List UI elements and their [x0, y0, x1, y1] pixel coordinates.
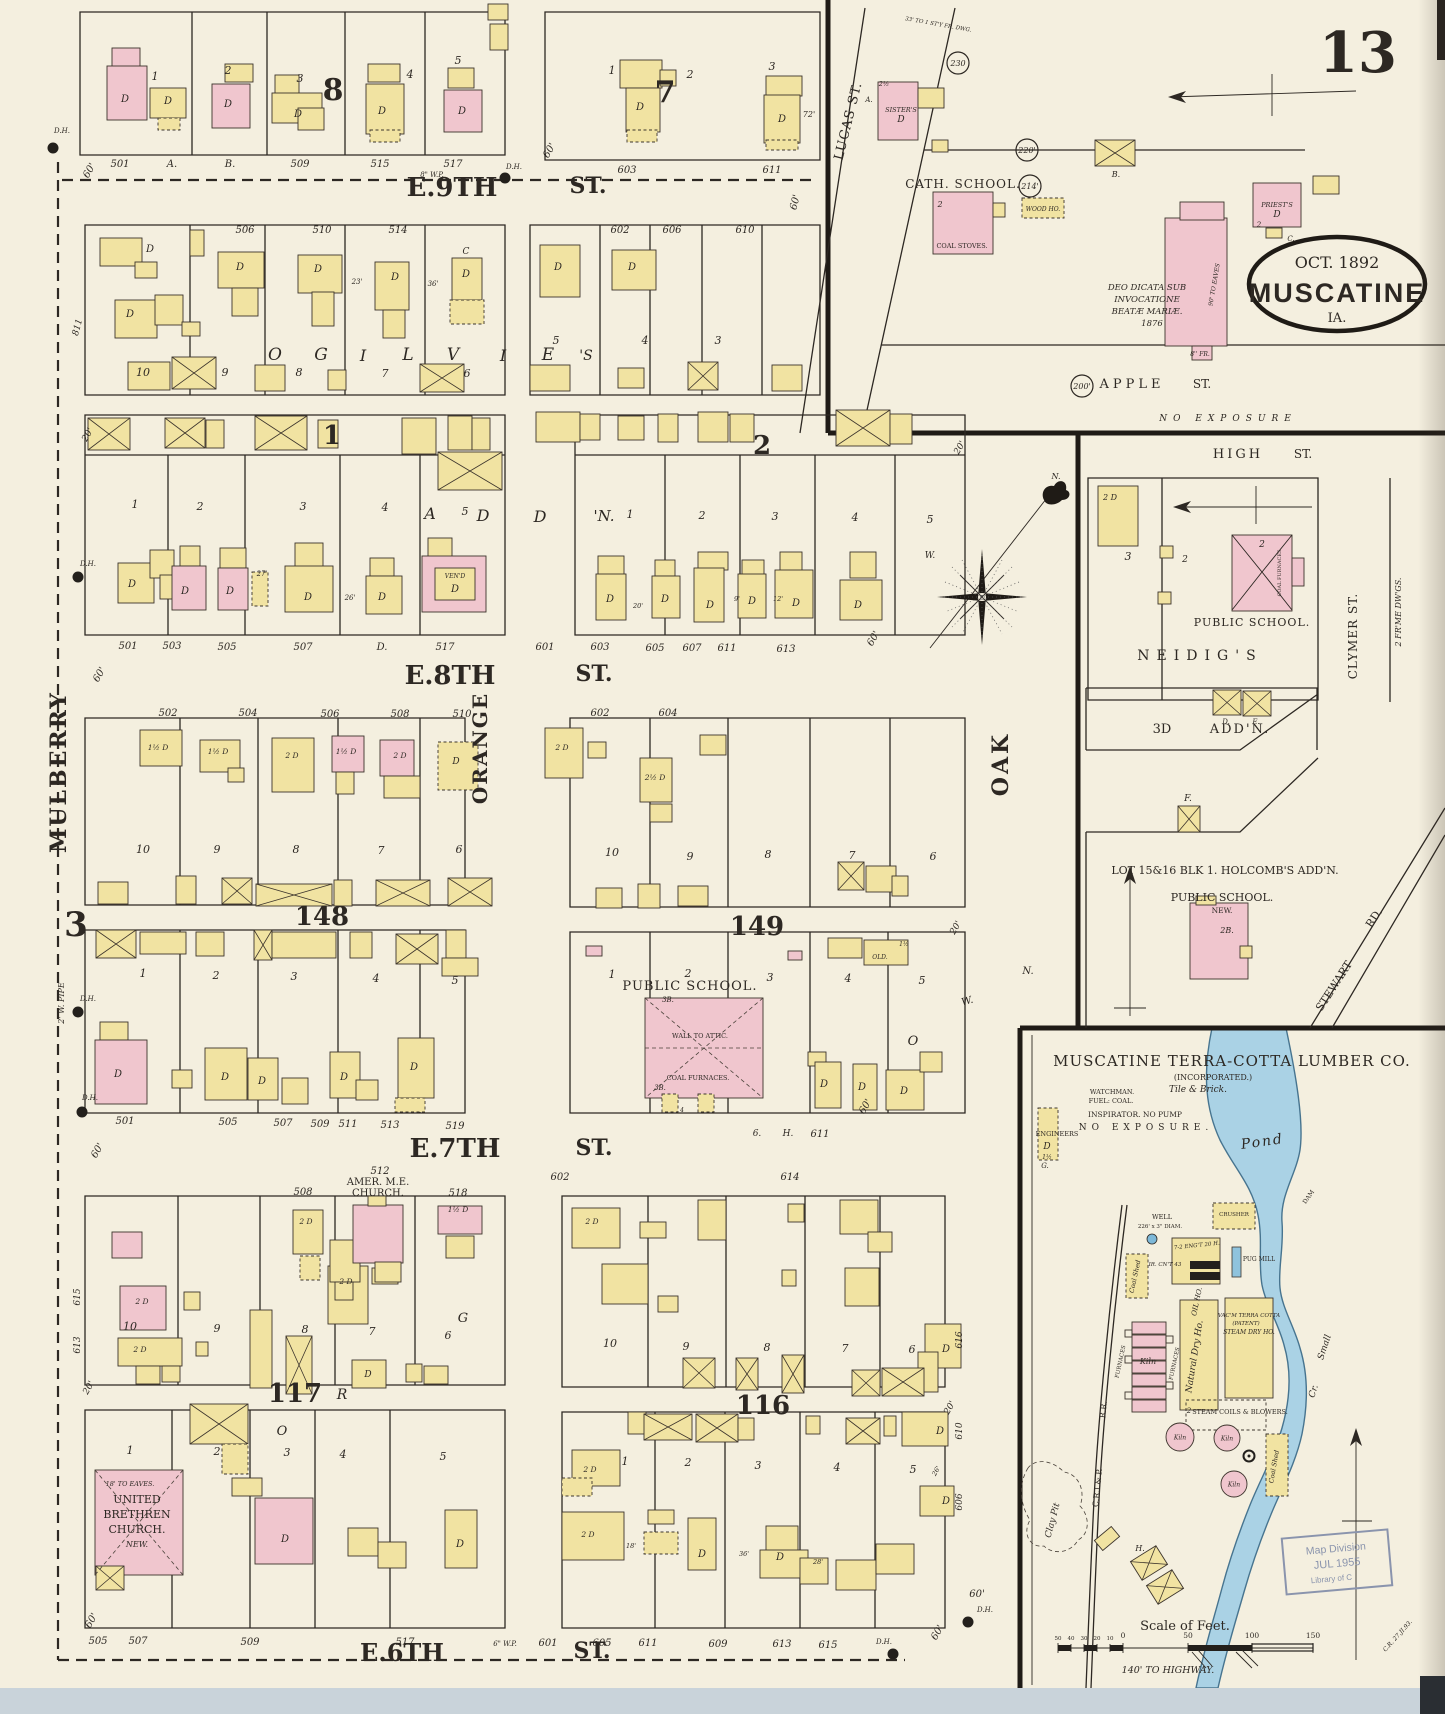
map-label: 2	[684, 1456, 692, 1469]
map-label: 602	[590, 708, 609, 719]
map-label: D	[941, 1496, 950, 1507]
building-footprint	[1243, 691, 1271, 716]
building-footprint	[420, 364, 464, 392]
map-label: 611	[638, 1638, 657, 1649]
map-label: D	[791, 598, 800, 609]
building-footprint	[840, 1200, 878, 1234]
map-label: 1½	[899, 941, 909, 948]
building-footprint	[220, 548, 246, 568]
map-label: 606	[955, 1493, 965, 1510]
map-label: UNITED	[113, 1493, 161, 1506]
map-label: (PATENT)	[1232, 1320, 1259, 1327]
map-label: D	[853, 600, 862, 611]
building-footprint	[350, 932, 372, 958]
scale-tick-label: 150	[1306, 1631, 1321, 1640]
map-label: CATH. SCHOOL.	[905, 177, 1021, 191]
hydrant-dot	[77, 1107, 88, 1118]
map-label: 1	[132, 498, 139, 511]
building-footprint	[782, 1355, 804, 1393]
map-label: OAK	[988, 732, 1014, 796]
map-label: V	[447, 345, 461, 365]
map-label: 2	[698, 509, 706, 522]
building-footprint	[780, 552, 802, 572]
map-label: 7	[378, 844, 385, 857]
map-label: 9'	[734, 595, 740, 603]
map-label: 2 D	[284, 751, 298, 760]
map-label: 1876	[1141, 319, 1163, 329]
map-label: 510	[452, 709, 472, 720]
building-footprint	[384, 776, 420, 798]
map-label: E.	[1251, 718, 1259, 726]
map-label: 610	[735, 225, 755, 236]
building-footprint	[806, 1416, 820, 1434]
map-label: D	[223, 99, 232, 110]
map-label: 6" W.P.	[493, 1640, 517, 1648]
map-label: 613	[73, 1336, 83, 1353]
building-footprint	[1132, 1387, 1166, 1399]
building-footprint	[182, 322, 200, 336]
building-footprint	[295, 543, 323, 567]
map-label: 3D	[1153, 722, 1172, 737]
map-label: 4	[851, 511, 859, 524]
building-footprint	[1190, 1261, 1220, 1269]
state-name: IA.	[1328, 311, 1347, 326]
map-label: 502	[158, 708, 177, 719]
map-label: INVOCATIONE	[1113, 295, 1180, 305]
building-footprint	[135, 262, 157, 278]
map-label: E.7TH	[410, 1134, 501, 1164]
map-label: 7	[655, 75, 676, 110]
building-footprint	[140, 932, 186, 954]
map-label: WOOD HO.	[1026, 206, 1061, 213]
building-footprint	[282, 1078, 308, 1104]
map-label: 28'	[812, 1558, 823, 1566]
building-footprint	[448, 878, 492, 906]
map-label: 2	[224, 64, 232, 77]
building-footprint	[892, 876, 908, 896]
map-label: D	[180, 586, 189, 597]
map-label: 2 FR'ME DW'GS.	[1394, 578, 1403, 648]
building-footprint	[688, 362, 718, 390]
building-footprint	[162, 1366, 180, 1382]
building-footprint	[648, 1510, 674, 1524]
map-label: E.8TH	[405, 661, 496, 691]
svg-text:200': 200'	[1072, 382, 1090, 391]
building-footprint	[572, 1208, 620, 1248]
scale-tick-label: 20	[1094, 1636, 1101, 1642]
hydrant-dot	[500, 173, 511, 184]
building-footprint	[688, 1518, 716, 1570]
building-footprint	[272, 738, 314, 792]
building-footprint	[836, 1560, 876, 1590]
map-label: D	[225, 586, 234, 597]
map-label: 3	[297, 72, 304, 85]
building-footprint	[698, 412, 728, 442]
map-label: 604	[658, 708, 677, 719]
building-footprint	[255, 365, 285, 391]
map-label: 611	[810, 1129, 829, 1140]
map-label: LOT 15&16 BLK 1. HOLCOMB'S ADD'N.	[1111, 864, 1338, 877]
building-footprint	[228, 768, 244, 782]
map-label: 601	[535, 642, 554, 653]
hydrant-dot	[963, 1617, 974, 1628]
map-label: 9	[687, 850, 694, 863]
map-label: CHURCH.	[352, 1188, 404, 1199]
building-footprint	[424, 1366, 448, 1384]
map-label: D.H.	[79, 560, 96, 568]
building-footprint	[845, 1268, 879, 1306]
scale-tick-label: 10	[1107, 1636, 1114, 1642]
map-label: D	[1272, 210, 1280, 220]
map-label: 3B.	[662, 996, 674, 1004]
kiln-circle: Kiln	[1221, 1471, 1247, 1497]
map-label: D	[941, 1344, 950, 1355]
map-label: 508	[293, 1187, 312, 1198]
map-label: 2	[1186, 1407, 1192, 1415]
map-label: NEW.	[125, 1540, 148, 1549]
scale-tick-label: 50	[1055, 1636, 1062, 1642]
map-label: ADD'N.	[1209, 722, 1270, 737]
scale-tick-label: 0	[1121, 1631, 1126, 1640]
map-label: 501	[118, 641, 137, 652]
map-label: D.H.	[81, 1094, 98, 1102]
building-footprint	[788, 1204, 804, 1222]
map-label: D	[163, 96, 172, 107]
building-footprint	[176, 876, 196, 904]
building-footprint	[876, 1544, 914, 1574]
map-label: 514	[388, 225, 407, 236]
map-label: N.	[1050, 472, 1060, 481]
map-label: 509	[290, 159, 310, 170]
map-label: O	[908, 1034, 919, 1049]
map-label: 8	[323, 73, 344, 108]
city-name: MUSCATINE	[1249, 278, 1426, 308]
map-label: WATCHMAN.	[1090, 1088, 1134, 1096]
map-label: FUEL: COAL.	[1089, 1097, 1134, 1105]
page-fold-shadow	[1418, 0, 1445, 1714]
map-label: O	[277, 1424, 288, 1439]
svg-text:230: 230	[949, 59, 965, 68]
building-footprint	[348, 1528, 378, 1556]
map-label: PUG MILL	[1243, 1256, 1275, 1263]
map-label: A.	[864, 96, 872, 104]
map-label: 4	[339, 1448, 347, 1461]
map-label: 513	[380, 1120, 399, 1131]
map-label: 4	[844, 972, 852, 985]
building-footprint	[438, 452, 502, 490]
map-label: 10	[603, 1337, 617, 1350]
map-label: 602	[550, 1172, 569, 1183]
map-label: D	[896, 115, 904, 125]
building-footprint	[678, 886, 708, 906]
building-footprint	[536, 412, 580, 442]
map-label: 3B.	[654, 1084, 666, 1092]
building-footprint	[184, 1292, 200, 1310]
map-label: 1	[609, 968, 616, 981]
map-label: D.H.	[976, 1606, 993, 1614]
map-label: H.	[782, 1129, 794, 1139]
corner-shadow	[1420, 1676, 1445, 1714]
map-label: 515	[370, 159, 389, 170]
building-footprint	[655, 560, 675, 576]
building-footprint	[180, 546, 200, 566]
map-label: 2 D	[1102, 493, 1118, 502]
map-label: 5	[455, 54, 462, 67]
map-label: D.H.	[875, 1638, 892, 1646]
building-footprint	[828, 938, 862, 958]
svg-text:Kiln: Kiln	[1173, 1435, 1186, 1442]
building-footprint	[488, 4, 508, 20]
building-footprint	[353, 1205, 403, 1263]
map-label: B.	[1111, 170, 1120, 179]
building-footprint	[285, 566, 333, 612]
building-footprint	[312, 292, 334, 326]
building-footprint	[383, 310, 405, 338]
map-label: ST.	[575, 1135, 612, 1161]
hydrant-dot	[73, 572, 84, 583]
map-label: 2	[1181, 555, 1188, 565]
building-footprint	[275, 75, 299, 95]
building-footprint	[172, 357, 216, 389]
map-label: NO EXPOSURE.	[1079, 1123, 1213, 1133]
map-label: ST.	[569, 173, 606, 199]
building-footprint	[775, 570, 813, 618]
building-footprint	[1132, 1400, 1166, 1412]
map-label: 3	[64, 905, 88, 945]
map-label: 1	[127, 1444, 134, 1457]
map-label: D	[293, 109, 302, 120]
map-label: 6.	[753, 1129, 762, 1139]
map-label: 10	[123, 1320, 137, 1333]
map-label: D	[457, 106, 466, 117]
map-label: 9	[222, 366, 229, 379]
map-label: 501	[115, 1116, 134, 1127]
map-label: D	[455, 1539, 464, 1550]
map-label: 508	[390, 709, 409, 720]
map-label: 2 D	[132, 1345, 146, 1354]
map-label: 603	[590, 642, 609, 653]
map-label: PUBLIC SCHOOL.	[1194, 616, 1311, 629]
building-footprint	[1190, 1272, 1220, 1280]
map-label: 'S	[579, 348, 592, 364]
map-label: 609	[708, 1639, 728, 1650]
building-footprint	[396, 934, 438, 964]
map-label: 1½ D	[336, 747, 356, 756]
map-label: 605	[592, 1638, 611, 1649]
map-label: COAL STOVES.	[936, 242, 987, 250]
building-footprint	[376, 880, 430, 906]
map-label: 36'	[428, 280, 439, 288]
building-footprint	[250, 1310, 272, 1388]
map-label: I	[359, 346, 367, 365]
building-footprint	[232, 288, 258, 316]
map-label: 2½ D	[644, 773, 665, 782]
map-label: 613	[776, 644, 795, 655]
map-label: D	[533, 507, 547, 526]
building-footprint	[586, 946, 602, 956]
building-footprint	[868, 1232, 892, 1252]
building-footprint	[406, 1364, 422, 1382]
map-label: 60'	[969, 1589, 984, 1600]
building-footprint	[472, 418, 490, 450]
map-label: 27'	[256, 570, 268, 578]
map-label: 2	[212, 969, 220, 982]
map-label: 4	[833, 1461, 841, 1474]
building-footprint	[490, 24, 508, 50]
building-footprint	[658, 414, 678, 442]
building-footprint	[638, 884, 660, 908]
map-label: MUSCATINE TERRA-COTTA LUMBER CO.	[1053, 1052, 1411, 1070]
building-footprint	[96, 1566, 124, 1590]
map-label: BEATÆ MARIÆ.	[1111, 307, 1183, 317]
map-label: 7	[849, 849, 856, 862]
map-label: 116	[736, 1391, 790, 1421]
map-label: D	[660, 594, 669, 605]
map-label: AMER. M.E.	[346, 1177, 410, 1188]
map-label: 10	[136, 366, 150, 379]
map-label: D	[476, 506, 490, 525]
building-footprint	[206, 420, 224, 448]
map-label: WELL	[1152, 1213, 1173, 1221]
map-label: 615	[73, 1288, 83, 1305]
map-label: 2 D	[580, 1530, 594, 1539]
map-label: 10	[605, 846, 619, 859]
map-label: D	[145, 244, 154, 255]
map-label: E	[541, 345, 555, 365]
building-footprint	[222, 1444, 248, 1474]
building-footprint	[545, 728, 583, 778]
map-label: (INCORPORATED.)	[1174, 1073, 1252, 1082]
map-label: D	[899, 1086, 908, 1097]
map-label: 606	[662, 225, 682, 236]
map-label: D	[777, 114, 786, 125]
building-footprint	[100, 1022, 128, 1040]
map-label: 2	[196, 500, 204, 513]
building-footprint	[884, 1416, 896, 1436]
building-footprint	[1213, 690, 1241, 715]
map-label: D.H.	[505, 163, 522, 171]
map-label: 2½	[878, 80, 889, 88]
map-label: DEO DICATA SUB	[1107, 283, 1186, 293]
building-footprint	[932, 140, 948, 152]
kiln-circle: Kiln	[1214, 1425, 1240, 1451]
map-label: D	[339, 1072, 348, 1083]
map-label: D	[1042, 1142, 1050, 1152]
building-footprint	[442, 958, 478, 976]
map-label: COAL FURNACES	[1277, 549, 1283, 596]
map-label: 1	[622, 1455, 629, 1468]
map-label: A.	[166, 159, 177, 170]
map-label: 3	[1125, 550, 1132, 563]
map-label: NEW.	[1212, 906, 1233, 915]
map-label: 2 D	[134, 1297, 148, 1306]
map-label: 501	[110, 159, 129, 170]
map-label: 1	[152, 70, 159, 83]
map-label: 226' x 3" DIAM.	[1138, 1224, 1183, 1230]
scale-tick-label: 30	[1081, 1636, 1088, 1642]
map-label: 8'' FR.	[1190, 351, 1210, 358]
map-label: D	[857, 1082, 866, 1093]
map-label: BRETHREN	[103, 1508, 171, 1521]
building-footprint	[580, 414, 600, 440]
map-label: R	[336, 1387, 348, 1403]
kiln-circle: Kiln	[1166, 1423, 1194, 1451]
map-label: D	[257, 1076, 266, 1087]
map-label: D.H.	[79, 995, 96, 1003]
building-footprint	[1266, 228, 1282, 238]
building-footprint	[150, 550, 174, 578]
hydrant-dot	[48, 143, 59, 154]
map-label: 509	[240, 1637, 260, 1648]
map-label: WALL TO ATTIC.	[672, 1032, 728, 1040]
building-footprint	[918, 88, 944, 108]
building-footprint	[255, 1498, 313, 1564]
map-label: D	[747, 596, 756, 607]
map-label: 3	[715, 334, 722, 347]
map-label: 507	[293, 642, 313, 653]
map-label: 2	[753, 431, 771, 461]
map-label: VEN'D	[445, 573, 466, 580]
map-label: 18'	[626, 1542, 636, 1550]
map-label: 8	[765, 848, 772, 861]
building-footprint	[694, 568, 724, 622]
page-number: 13	[1319, 20, 1397, 86]
building-footprint	[738, 1418, 754, 1440]
map-label: D	[313, 264, 322, 275]
map-label: 614	[780, 1172, 799, 1183]
map-label: 1	[140, 967, 147, 980]
map-label: CLYMER ST.	[1346, 593, 1360, 679]
map-label: Tile & Brick.	[1169, 1085, 1227, 1095]
map-label: D	[553, 262, 562, 273]
building-footprint	[165, 418, 205, 448]
map-label: 4	[406, 68, 414, 81]
map-label: 9	[214, 843, 221, 856]
map-label: 3	[767, 971, 774, 984]
building-footprint	[1313, 176, 1339, 194]
map-label: 7	[842, 1342, 849, 1355]
building-footprint	[866, 866, 896, 892]
map-label: 6	[930, 850, 937, 863]
building-footprint	[852, 1370, 880, 1396]
building-footprint	[1180, 202, 1224, 220]
building-footprint	[446, 1236, 474, 1258]
map-label: 505	[88, 1636, 107, 1647]
scan-bed-strip	[0, 1688, 1445, 1714]
map-label: 1½ D	[208, 747, 228, 756]
svg-text:220': 220'	[1017, 146, 1035, 155]
building-footprint	[850, 552, 876, 578]
building-footprint	[562, 1478, 592, 1496]
edge-mark	[1437, 0, 1445, 60]
map-label: VAC'M TERRA COTTA	[1218, 1313, 1280, 1319]
map-label: F.	[1183, 794, 1192, 804]
building-footprint	[598, 556, 624, 576]
map-label: 148	[295, 902, 349, 932]
building-footprint	[588, 742, 606, 758]
map-label: D	[235, 262, 244, 273]
building-footprint	[788, 951, 802, 960]
map-label: 601	[538, 1638, 557, 1649]
map-label: Kiln	[1139, 1357, 1156, 1366]
building-footprint	[1132, 1374, 1166, 1386]
building-footprint	[920, 1052, 942, 1072]
sanborn-map-sheet: Map Division JUL 1955 Library of C E.9TH…	[0, 0, 1445, 1714]
map-label: 12'	[773, 595, 783, 603]
map-label: D	[125, 309, 134, 320]
map-label: D	[697, 1549, 706, 1560]
map-label: 8	[302, 1323, 309, 1336]
